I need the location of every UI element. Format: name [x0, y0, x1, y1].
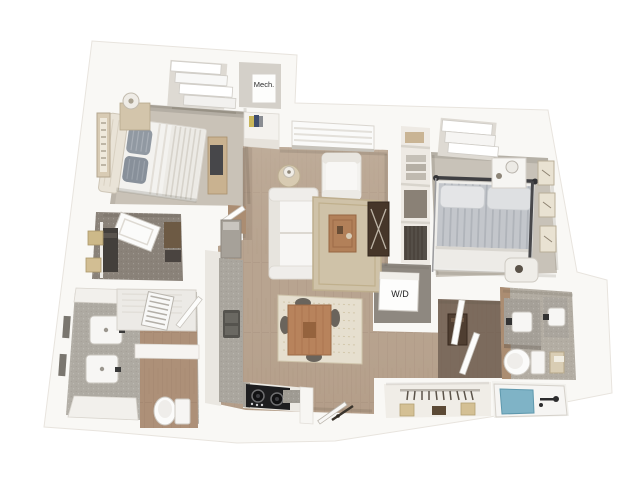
svg-text:Mech.: Mech.	[254, 80, 274, 89]
svg-text:W/D: W/D	[391, 289, 409, 299]
